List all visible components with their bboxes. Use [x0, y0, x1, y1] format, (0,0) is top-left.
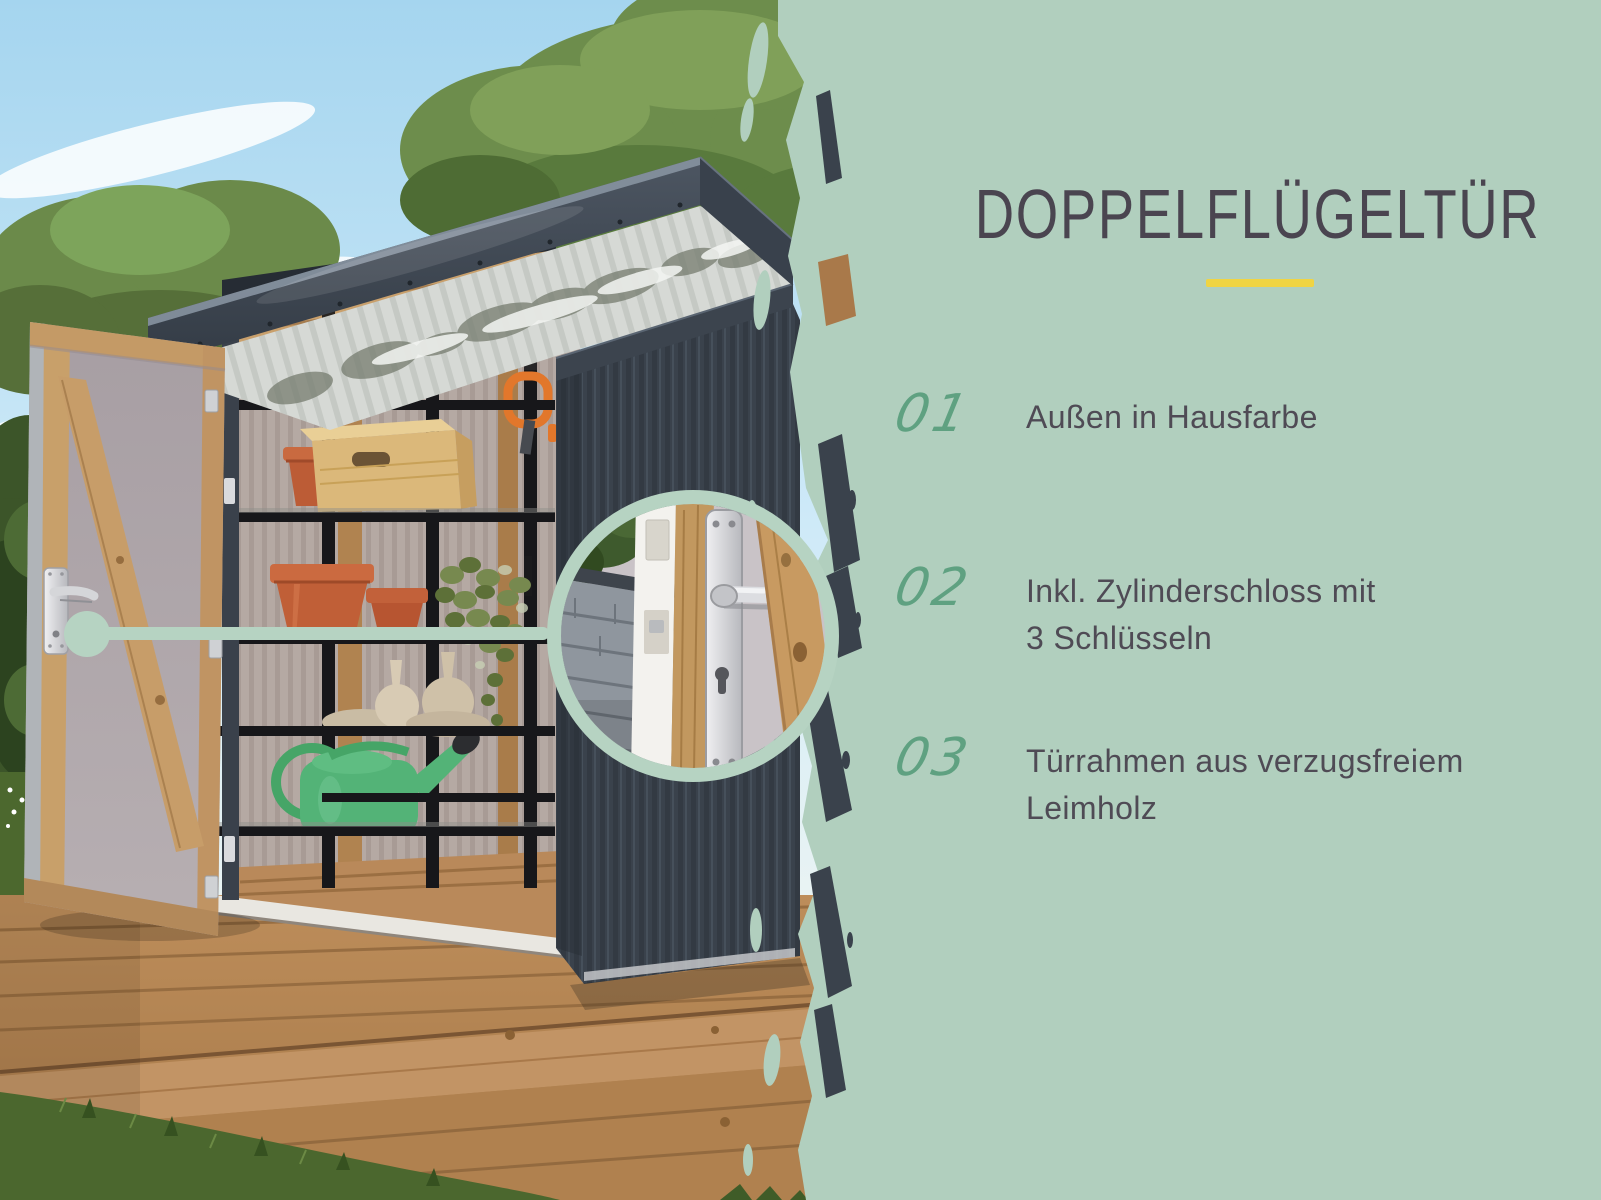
lock-plate: [706, 510, 742, 776]
feature-text-line: Leimholz: [1026, 785, 1556, 832]
shed-door-infographic: DOPPELFLÜGELTÜR 01 Außen in Hausfarbe 02…: [0, 0, 1601, 1200]
feature-number-1: 01: [890, 388, 975, 440]
callout-dot: [64, 611, 110, 657]
feature-number-2: 02: [890, 562, 975, 614]
feature-text-line: 3 Schlüsseln: [1026, 615, 1556, 662]
feature-row-3: 03 Türrahmen aus verzugsfreiem Leimholz: [896, 726, 1556, 832]
feature-row-2: 02 Inkl. Zylinderschloss mit 3 Schlüssel…: [896, 556, 1556, 662]
feature-number-3: 03: [890, 732, 975, 784]
feature-text-3: Türrahmen aus verzugsfreiem Leimholz: [1026, 726, 1556, 832]
callout-connector-line: [87, 627, 549, 640]
feature-text-1: Außen in Hausfarbe: [1026, 382, 1556, 441]
feature-text-line: Türrahmen aus verzugsfreiem: [1026, 738, 1556, 785]
feature-text-2: Inkl. Zylinderschloss mit 3 Schlüsseln: [1026, 556, 1556, 662]
feature-row-1: 01 Außen in Hausfarbe: [896, 382, 1556, 441]
cardboard-box: [300, 419, 477, 512]
accent-divider: [1206, 279, 1314, 287]
feature-text-line: Außen in Hausfarbe: [1026, 394, 1556, 441]
panel-title: DOPPELFLÜGELTÜR: [975, 177, 1505, 251]
feature-text-line: Inkl. Zylinderschloss mit: [1026, 568, 1556, 615]
door-jamb: [222, 316, 239, 900]
